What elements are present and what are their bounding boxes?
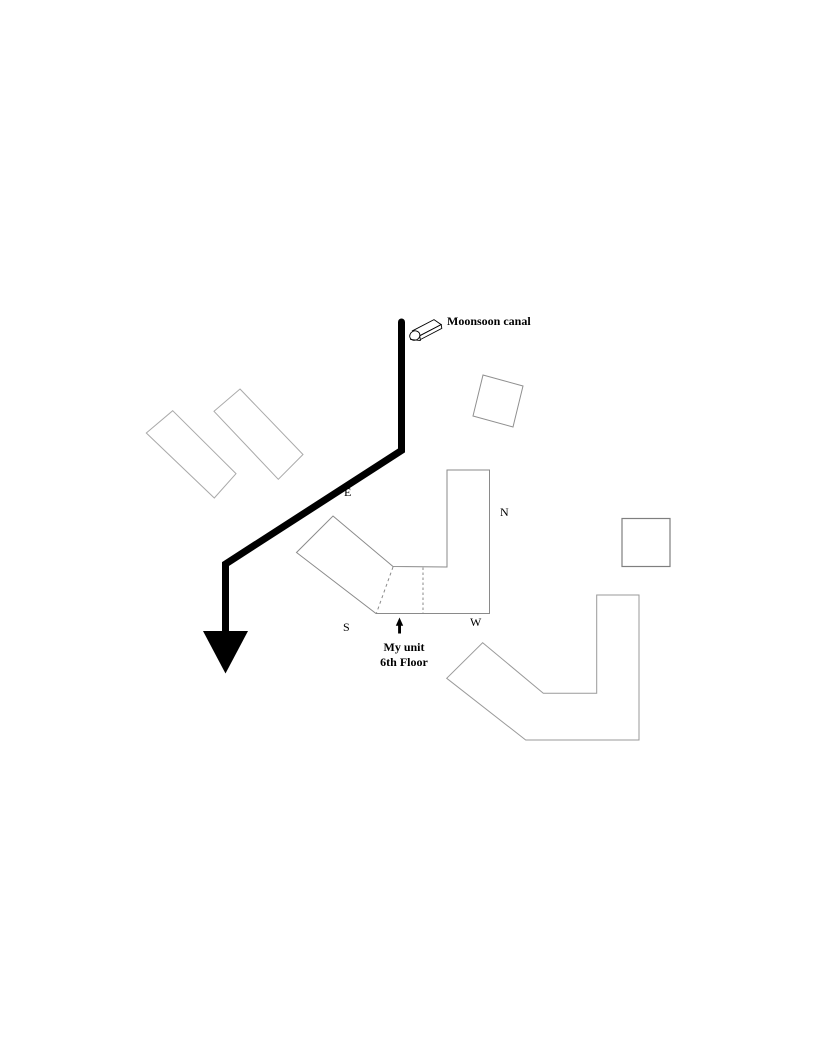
sketch-map-page: Moonsoon canal E N W S My unit 6th Floor bbox=[0, 0, 816, 1056]
compass-south-label: S bbox=[343, 620, 350, 634]
site-map-diagram bbox=[0, 0, 816, 1056]
rotated-rect-building-left bbox=[146, 411, 236, 498]
canal-3d-marker-icon bbox=[408, 320, 442, 343]
tilted-square-building bbox=[473, 375, 523, 427]
my-unit-label: My unit bbox=[383, 640, 424, 654]
unit-pointer-arrow-icon bbox=[396, 618, 403, 634]
compass-north-label: N bbox=[500, 505, 509, 519]
main-building bbox=[297, 470, 490, 614]
route-arrowhead-icon bbox=[203, 631, 248, 674]
canal-label: Moonsoon canal bbox=[447, 314, 531, 328]
compass-west-label: W bbox=[470, 615, 481, 629]
floor-label: 6th Floor bbox=[380, 655, 428, 669]
compass-east-label: E bbox=[344, 485, 351, 499]
small-square-building bbox=[622, 519, 670, 567]
